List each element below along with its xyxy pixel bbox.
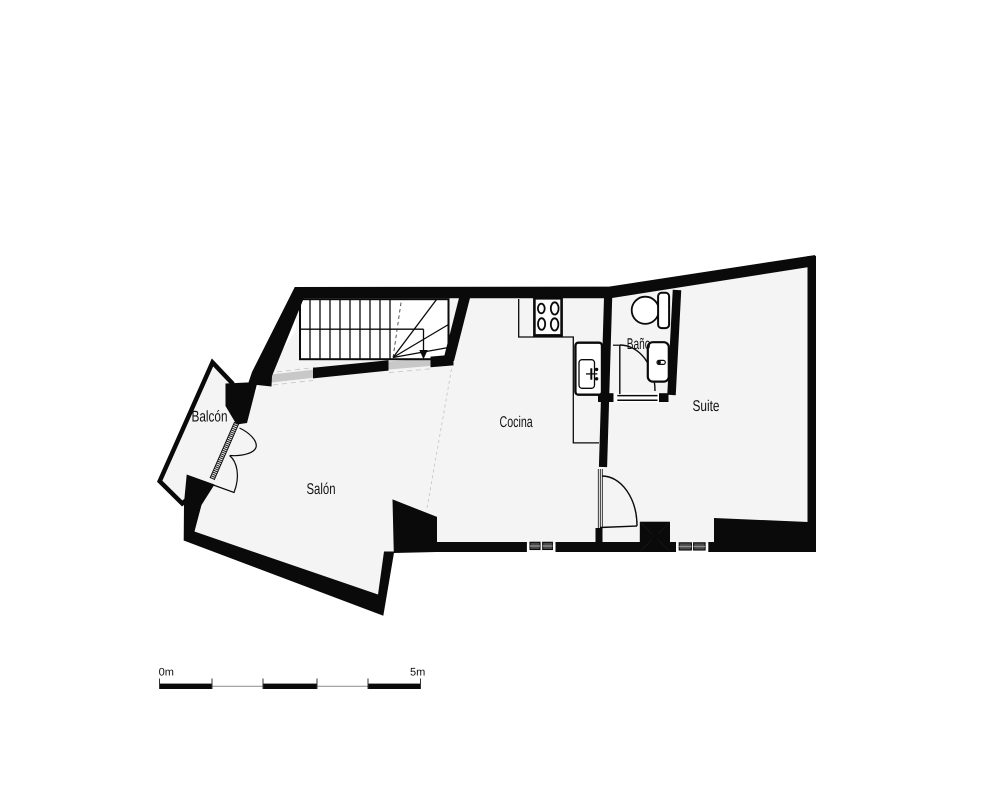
svg-text:0m: 0m bbox=[159, 667, 174, 679]
svg-text:Cocina: Cocina bbox=[500, 414, 533, 431]
svg-text:Suite: Suite bbox=[693, 398, 720, 415]
svg-text:5m: 5m bbox=[410, 667, 425, 679]
svg-text:Balcón: Balcón bbox=[192, 409, 228, 426]
svg-text:Baño: Baño bbox=[627, 336, 651, 353]
svg-text:Salón: Salón bbox=[307, 481, 336, 498]
